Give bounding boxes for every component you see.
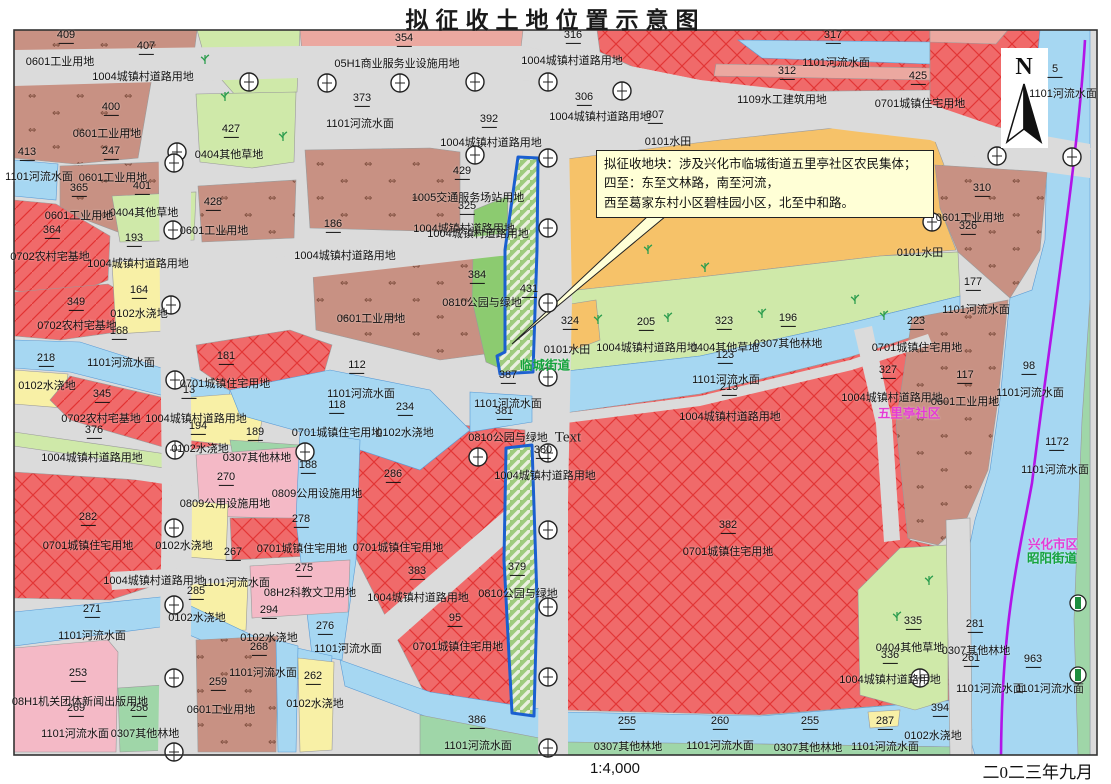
survey-point-icon <box>391 74 409 92</box>
survey-point-icon <box>165 669 183 687</box>
map-date: 二0二三年九月 <box>983 758 1094 783</box>
water-river <box>14 160 58 200</box>
annotation-box: 拟征收地块：涉及兴化市临城街道五里亭社区农民集体； 四至：东至文林路，南至河流，… <box>596 150 934 218</box>
annotation-line: 西至葛家东村小区碧桂园小区，北至中和路。 <box>604 194 926 213</box>
survey-point-icon <box>988 147 1006 165</box>
road-segment <box>946 518 972 755</box>
map-scale: 1:4,000 <box>555 760 675 777</box>
parcel-industrial <box>198 180 296 242</box>
north-arrow-label: N <box>1015 54 1033 80</box>
survey-point-icon <box>911 669 929 687</box>
road-vertical-left <box>158 86 192 755</box>
survey-point-icon <box>165 154 183 172</box>
survey-point-icon <box>166 371 184 389</box>
survey-point-icon <box>539 598 557 616</box>
survey-point-icon <box>613 82 631 100</box>
parcel-industrial <box>305 148 460 232</box>
well-marker-icon <box>1070 595 1086 611</box>
map-page: ⇔ ⇔ <box>0 0 1111 784</box>
survey-point-icon <box>166 441 184 459</box>
parcel-industrial <box>196 636 278 752</box>
page-title: 拟征收土地位置示意图 <box>0 1 1111 35</box>
survey-point-icon <box>165 596 183 614</box>
annotation-line: 拟征收地块：涉及兴化市临城街道五里亭社区农民集体； <box>604 155 926 174</box>
parcel-public-facility <box>14 640 118 752</box>
survey-point-icon <box>164 221 182 239</box>
parcel-irrigated <box>868 710 900 728</box>
parcel-public-facility <box>250 560 350 618</box>
water-river <box>276 640 298 752</box>
survey-point-icon <box>240 73 258 91</box>
survey-point-icon <box>469 448 487 466</box>
parcel-irrigated <box>298 658 334 752</box>
survey-point-icon <box>539 368 557 386</box>
survey-point-icon <box>539 294 557 312</box>
acquisition-parcel-south <box>504 445 537 716</box>
survey-point-icon <box>539 149 557 167</box>
survey-point-icon <box>539 668 557 686</box>
survey-point-icon <box>162 296 180 314</box>
survey-point-icon <box>296 443 314 461</box>
survey-point-icon <box>318 74 336 92</box>
survey-point-icon <box>466 146 484 164</box>
survey-point-icon <box>539 73 557 91</box>
survey-point-icon <box>165 743 183 761</box>
survey-point-icon <box>539 219 557 237</box>
well-marker-icon <box>1070 667 1086 683</box>
north-arrow: N <box>1001 48 1048 148</box>
survey-point-icon <box>1063 148 1081 166</box>
survey-point-icon <box>539 444 557 462</box>
survey-point-icon <box>165 519 183 537</box>
annotation-line: 四至：东至文林路，南至河流， <box>604 174 926 193</box>
parcel-grass <box>196 92 296 168</box>
survey-point-icon <box>466 73 484 91</box>
survey-point-icon <box>539 521 557 539</box>
map-canvas[interactable]: ⇔ ⇔ <box>0 0 1111 784</box>
